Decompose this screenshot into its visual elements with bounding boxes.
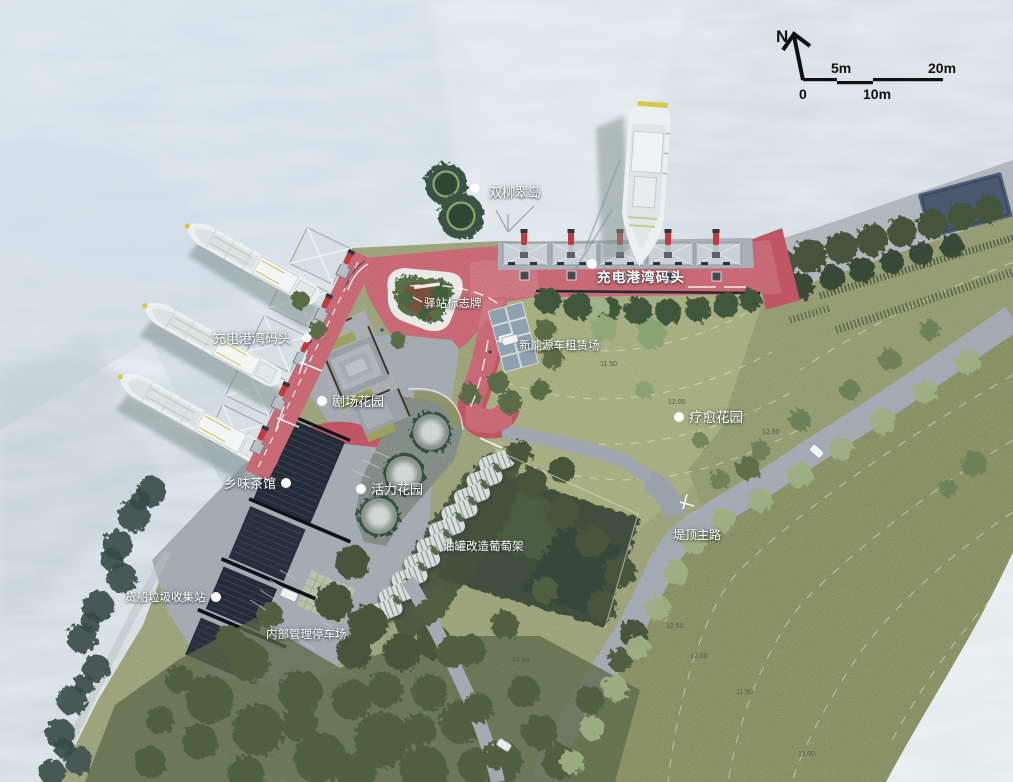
svg-text:12.50: 12.50: [512, 657, 530, 664]
svg-text:N: N: [776, 27, 788, 46]
svg-text:5m: 5m: [831, 60, 851, 76]
svg-text:0: 0: [799, 86, 807, 102]
svg-text:疗愈花园: 疗愈花园: [689, 410, 743, 425]
svg-text:12.50: 12.50: [666, 623, 684, 630]
svg-text:驿站标志牌: 驿站标志牌: [424, 296, 482, 310]
svg-text:油罐改造葡萄架: 油罐改造葡萄架: [443, 539, 524, 553]
svg-text:双柳翠岛: 双柳翠岛: [489, 185, 541, 200]
svg-text:剧场花园: 剧场花园: [332, 394, 384, 409]
svg-text:20m: 20m: [928, 60, 956, 76]
svg-text:12.00: 12.00: [690, 653, 708, 660]
svg-text:10m: 10m: [863, 86, 891, 102]
svg-text:充电港湾码头: 充电港湾码头: [597, 269, 685, 285]
svg-text:活力花园: 活力花园: [371, 482, 423, 497]
svg-text:11.50: 11.50: [736, 689, 753, 696]
svg-text:内部管理停车场: 内部管理停车场: [266, 627, 347, 641]
svg-text:充电港湾码头: 充电港湾码头: [213, 331, 291, 346]
svg-text:堤顶主路: 堤顶主路: [673, 527, 721, 542]
svg-text:新能源车租赁场: 新能源车租赁场: [519, 338, 600, 352]
svg-text:12.00: 12.00: [668, 399, 686, 406]
svg-text:11.50: 11.50: [600, 361, 617, 368]
svg-text:乡味茶馆: 乡味茶馆: [224, 476, 276, 491]
svg-text:12.50: 12.50: [762, 429, 780, 436]
svg-text:11.00: 11.00: [798, 751, 815, 758]
svg-text:货船垃圾收集站: 货船垃圾收集站: [125, 590, 206, 604]
